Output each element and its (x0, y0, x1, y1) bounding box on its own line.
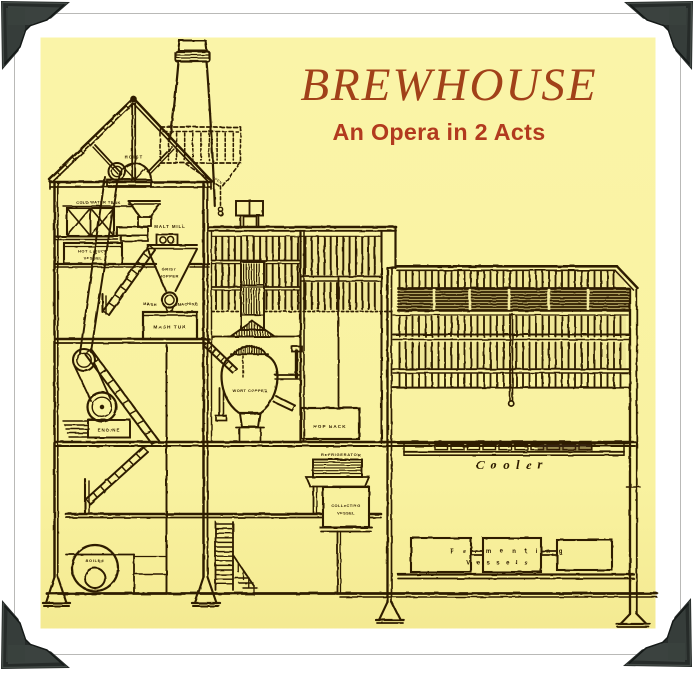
svg-text:HOT LIQUOR: HOT LIQUOR (78, 249, 108, 254)
svg-text:F e r m e n t i n g: F e r m e n t i n g (450, 549, 566, 555)
svg-text:MALT MILL: MALT MILL (154, 224, 185, 229)
svg-text:BOILER: BOILER (86, 558, 105, 563)
svg-text:VESSEL: VESSEL (84, 256, 103, 261)
svg-text:HOP BACK: HOP BACK (313, 424, 346, 429)
svg-text:WORT COPPER: WORT COPPER (233, 388, 268, 393)
svg-text:MASH: MASH (144, 303, 157, 307)
svg-text:An Opera in 2 Acts: An Opera in 2 Acts (333, 119, 546, 145)
svg-text:REFRIGERATOR: REFRIGERATOR (321, 452, 361, 457)
svg-text:BREWHOUSE: BREWHOUSE (300, 59, 597, 111)
svg-text:HOIST: HOIST (125, 155, 144, 160)
svg-text:HOPPER: HOPPER (159, 274, 179, 279)
svg-text:VESSEL: VESSEL (337, 511, 355, 516)
svg-text:MASH TUN: MASH TUN (153, 325, 186, 331)
svg-text:MACHINE: MACHINE (178, 303, 199, 307)
svg-text:COLLECTING: COLLECTING (331, 503, 360, 508)
svg-text:ENGINE: ENGINE (98, 428, 121, 433)
svg-text:V e s s e l s: V e s s e l s (466, 561, 530, 567)
svg-text:GRIST: GRIST (162, 267, 177, 272)
svg-text:C o o l e r: C o o l e r (476, 457, 545, 472)
svg-text:COLD WATER TANK: COLD WATER TANK (76, 200, 121, 205)
